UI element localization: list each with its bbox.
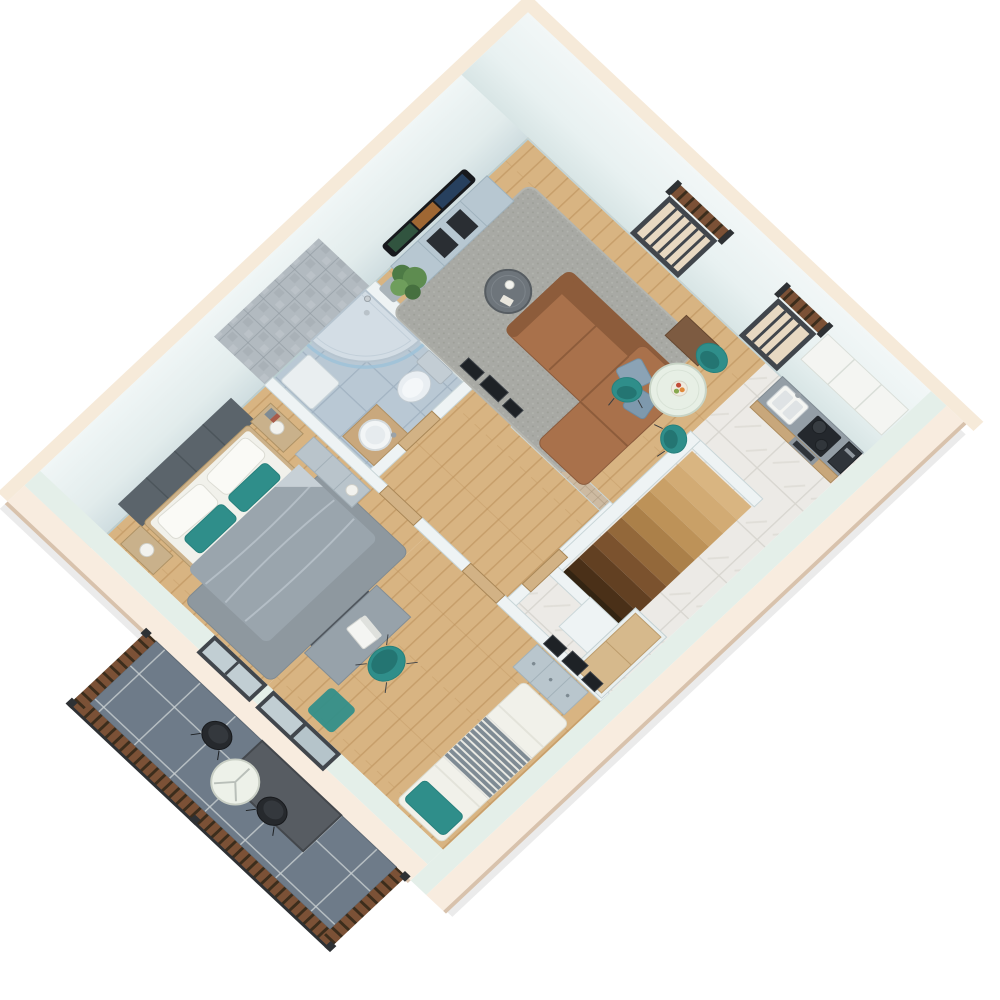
viewport xyxy=(0,0,1000,1000)
floor-plan-render xyxy=(0,0,1000,1000)
